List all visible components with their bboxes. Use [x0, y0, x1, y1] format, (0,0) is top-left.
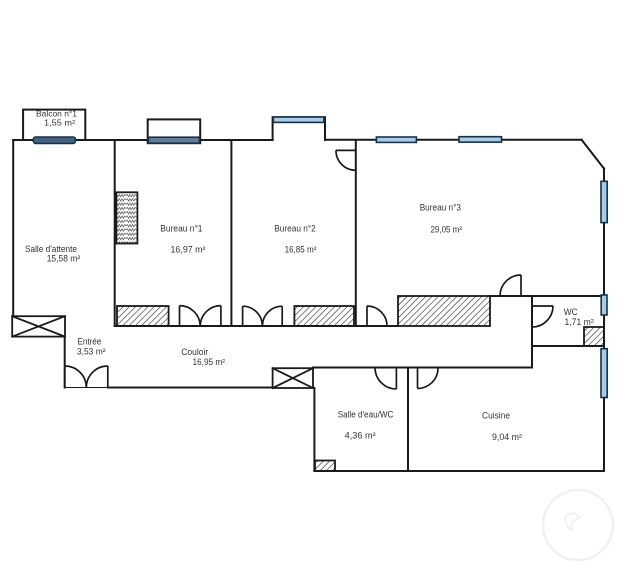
svg-text:9,04 m²: 9,04 m² — [492, 432, 522, 442]
svg-text:Salle d'eau/WC: Salle d'eau/WC — [338, 410, 394, 420]
svg-text:3,53 m²: 3,53 m² — [77, 347, 106, 357]
svg-text:1,55 m²: 1,55 m² — [44, 118, 75, 127]
svg-text:Cuisine: Cuisine — [482, 411, 510, 421]
svg-text:WC: WC — [564, 307, 578, 317]
svg-text:Couloir: Couloir — [181, 347, 208, 357]
svg-text:16,85 m²: 16,85 m² — [285, 245, 317, 255]
svg-text:Bureau n°1: Bureau n°1 — [160, 223, 202, 233]
svg-text:Bureau n°2: Bureau n°2 — [274, 224, 315, 234]
svg-text:15,58 m²: 15,58 m² — [47, 254, 80, 264]
svg-text:16,97 m²: 16,97 m² — [171, 245, 206, 255]
svg-text:29,05 m²: 29,05 m² — [431, 225, 463, 235]
svg-text:Salle d'attente: Salle d'attente — [25, 244, 77, 254]
svg-text:4,36 m²: 4,36 m² — [345, 431, 376, 441]
svg-text:Balcon n°1: Balcon n°1 — [36, 110, 78, 119]
svg-text:16,95 m²: 16,95 m² — [193, 357, 226, 367]
svg-text:Bureau n°3: Bureau n°3 — [420, 203, 461, 213]
svg-text:Entrée: Entrée — [78, 337, 102, 347]
svg-text:1,71 m²: 1,71 m² — [565, 317, 594, 327]
